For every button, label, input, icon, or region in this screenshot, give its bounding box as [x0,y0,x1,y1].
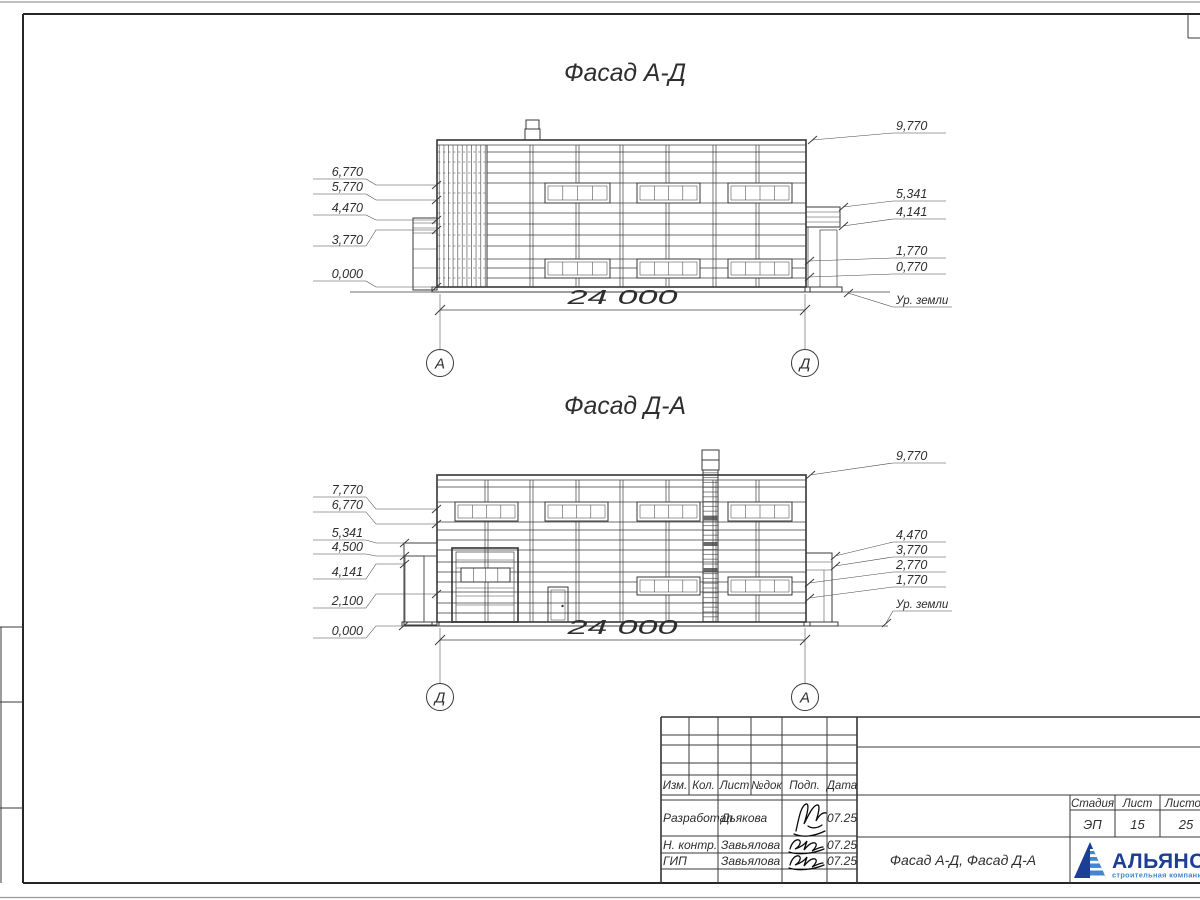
col-header-list: Лист [719,780,750,792]
elevation-label: 5,770 [332,180,363,194]
elevation-label: 1,770 [896,573,927,587]
ground-level-label: Ур. земли [895,295,949,307]
stage-value: ЭП [1083,817,1102,832]
col-header-kol: Кол. [692,780,715,792]
corrugated-cladding [437,145,487,287]
facade-bottom-title: Фасад Д-А [564,392,686,420]
sheet-header: Лист [1122,798,1153,810]
elevation-label: 9,770 [896,119,927,133]
axis-label: Д [433,690,446,707]
col-header-ndok: №док [751,780,782,792]
sheet-frame [0,2,1200,898]
signature-zavyalova-1 [789,840,824,854]
ground-level-label: Ур. земли [895,599,949,611]
axis-label: Д [798,356,811,373]
axis-label: А [799,690,810,707]
annex-right-top [805,207,842,292]
axis-label: А [434,356,445,373]
facade-top-title: Фасад А-Д [564,59,686,87]
annex-left-top [413,218,437,290]
sheets-total-header: Листов [1164,798,1200,810]
elevation-label: 6,770 [332,498,363,512]
elevation-marks-right-top: 9,770 5,341 4,141 1,770 0,770 Ур. земли [805,119,952,307]
row-date: 07.25 [827,854,857,868]
col-header-data: Дата [825,780,857,792]
titleblock: Изм. Кол. Лист №док Подп. Дата Разработа… [661,717,1200,883]
company-logo: АЛЬЯНС строительная компания [1074,842,1200,880]
elevation-label: 4,500 [332,540,363,554]
windows-lower-top [545,259,792,278]
elevation-label: 9,770 [896,449,927,463]
windows-upper-bottom [455,502,792,521]
elevation-label: 0,770 [896,260,927,274]
row-date: 07.25 [827,811,857,825]
annex-left-bottom [402,543,439,626]
row-name: Завьялова [721,838,780,852]
elevation-label: 1,770 [896,244,927,258]
row-role: Н. контр. [663,838,717,852]
row-name: Дьякова [719,811,768,825]
elevation-marks-left-bottom: 7,770 6,770 5,341 4,500 4,141 2,100 0,00… [313,483,441,638]
dimension-label: 24 000 [566,617,678,639]
row-name: Завьялова [721,854,780,868]
elevation-label: 4,141 [896,205,927,219]
row-role: ГИП [663,854,687,868]
drawing-sheet: Фасад А-Д [0,0,1200,900]
elevation-label: 6,770 [332,165,363,179]
signature-dyakova [794,804,826,836]
drawing-canvas: Фасад А-Д [0,0,1200,900]
elevation-label: 4,470 [332,201,363,215]
elevation-label: 0,000 [332,267,363,281]
signature-zavyalova-2 [789,856,824,870]
elevation-label: 2,770 [895,558,927,572]
dimension-top: 24 000 А Д [427,287,819,377]
windows-upper-top [545,183,792,203]
elevation-marks-right-bottom: 9,770 4,470 3,770 2,770 1,770 Ур. земли [805,449,952,627]
elevation-label: 2,100 [331,594,363,608]
elevation-label: 3,770 [332,233,363,247]
facade-top: Фасад А-Д [313,59,952,377]
dimension-label: 24 000 [566,287,678,309]
logo-tagline: строительная компания [1112,871,1200,880]
elevation-label: 5,341 [896,187,927,201]
signatures [789,804,826,870]
annex-right-bottom [804,553,838,626]
sheets-total-value: 25 [1178,817,1194,832]
elevation-label: 0,000 [332,624,363,638]
doc-title: Фасад А-Д, Фасад Д-А [890,852,1036,868]
elevation-label: 7,770 [332,483,363,497]
dimension-bottom: 24 000 Д А [427,617,819,711]
elevation-label: 4,470 [896,528,927,542]
sheet-value: 15 [1130,817,1145,832]
elevation-label: 4,141 [332,565,363,579]
row-date: 07.25 [827,838,857,852]
col-header-izm: Изм. [663,780,688,792]
facade-bottom: Фасад Д-А [313,392,952,711]
chimney-top [525,120,540,140]
elevation-label: 3,770 [896,543,927,557]
stage-header: Стадия [1071,798,1114,810]
col-header-podp: Подп. [789,780,820,792]
elevation-label: 5,341 [332,526,363,540]
